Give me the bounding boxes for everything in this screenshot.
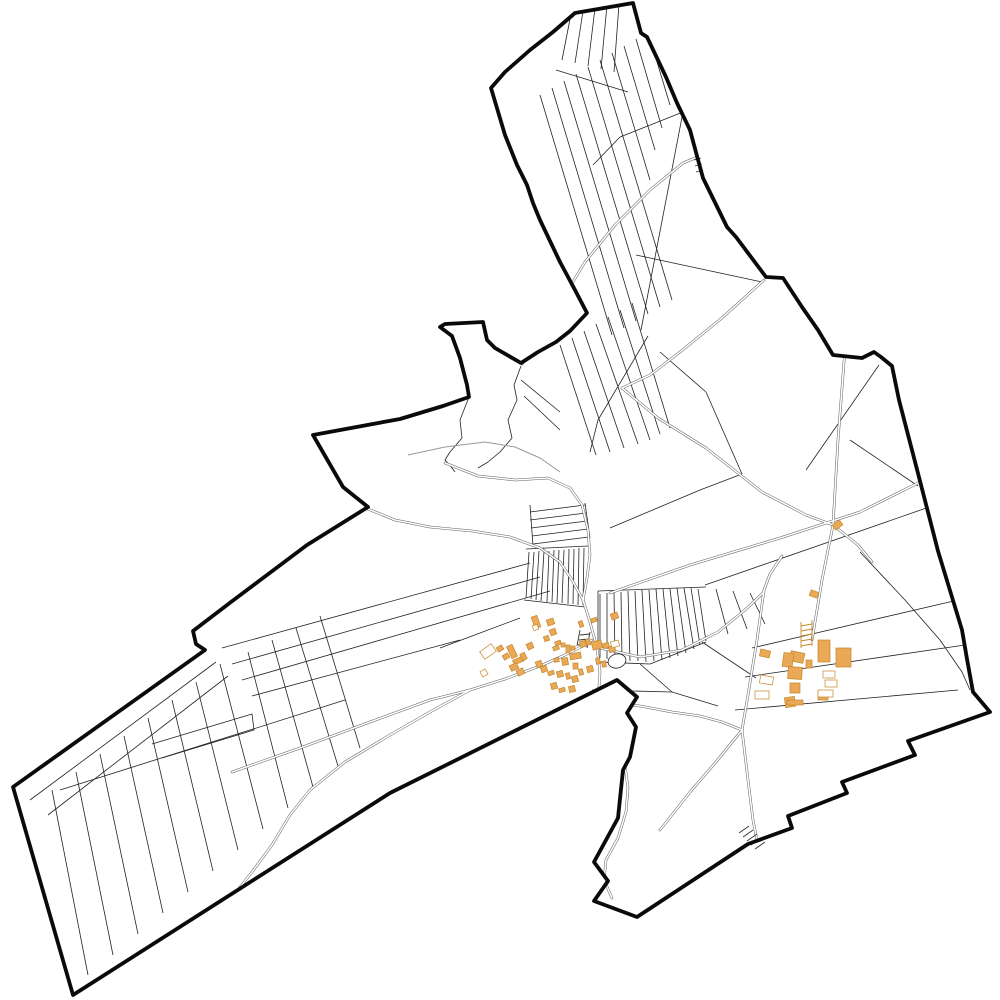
stream-lines	[408, 442, 560, 472]
parcel-lines	[30, 4, 970, 975]
commune-boundary	[13, 3, 990, 995]
building-hatch-marks	[801, 620, 812, 648]
hatch-marks	[577, 158, 765, 849]
map-canvas	[0, 0, 1000, 1000]
commune-cadastral-map	[0, 0, 1000, 1000]
